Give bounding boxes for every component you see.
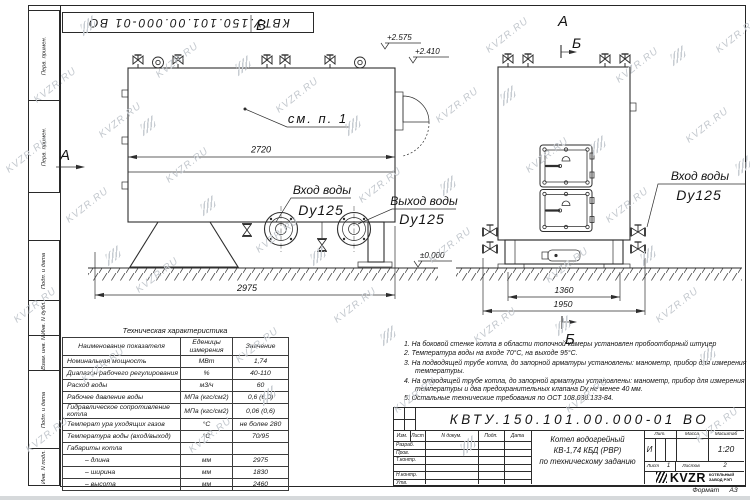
company-logo: KVZR КОТЕЛЬНЫЙ ЗАВОД РЭП xyxy=(646,471,744,484)
inlet-side-text: Вход воды xyxy=(671,169,729,183)
table-cell: % xyxy=(181,368,233,380)
inverted-doc-number-stamp: КВТУ.150.101.00.000-01 ВО xyxy=(62,12,314,33)
boiler-side-view: 2720 2975 см. п. 1 В А xyxy=(56,15,458,299)
table-row: – высотамм2460 xyxy=(63,479,289,491)
side-valve-icon xyxy=(483,225,498,237)
boiler-end-view: 1360 1950 А Б Б xyxy=(456,13,745,348)
table-row: Наименование показателя Еденицы измерени… xyxy=(63,338,289,356)
drawing-title-line1: Котел водогрейный xyxy=(531,434,644,444)
ground-hatch xyxy=(88,269,438,281)
table-row: Номинальная мощностьМВт1,74 xyxy=(63,356,289,368)
see-note-callout: см. п. 1 xyxy=(244,108,351,128)
frame-cell-label: Инв. N дубл. xyxy=(41,301,47,335)
table-cell: 60 xyxy=(233,380,289,392)
sheet-label: Лист xyxy=(644,461,662,471)
outlet-front-dn: Dy125 xyxy=(399,211,444,227)
frame-cell-podp-data-2: Подп. и дата xyxy=(28,370,60,449)
dim-1950-label: 1950 xyxy=(554,299,573,309)
valve-icon xyxy=(173,55,183,68)
col-izm: Изм. xyxy=(394,431,410,441)
frame-cell-inv-dubl: Инв. N дубл. xyxy=(28,300,60,336)
table-cell: МПа (кгс/см2) xyxy=(181,392,233,404)
section-b-top-label: Б xyxy=(572,35,582,51)
title-block: КВТУ.150.101.00.000-01 ВО Изм. Лист N до… xyxy=(393,407,746,486)
frame-cell-label: Инв. N подл. xyxy=(41,450,47,484)
table-row: Температура воды (вход/выход)°С70/95 xyxy=(63,431,289,443)
valve-icon xyxy=(133,55,143,68)
kvzr-stripes-icon xyxy=(656,472,667,483)
table-cell: м3/ч xyxy=(181,380,233,392)
view-a-right-label: А xyxy=(557,13,568,30)
frame-cell-inv-podl: Инв. N подл. xyxy=(28,448,60,486)
col-doc: N докум. xyxy=(425,431,478,441)
inlet-front-text: Вход воды xyxy=(293,183,351,197)
elevation-2410-label: +2.410 xyxy=(415,47,440,56)
role-nkontr: Н.контр. xyxy=(396,472,424,478)
table-cell: Диапазон рабочего регулирования xyxy=(63,368,181,380)
lit-label: Лит. xyxy=(644,431,676,438)
dimension-2720: 2720 xyxy=(128,145,395,160)
table-cell: 1830 xyxy=(233,467,289,479)
kvzr-logo-text: KVZR xyxy=(670,471,706,485)
furnace-door-lower xyxy=(540,190,594,232)
side-valve-icon xyxy=(631,242,646,254)
company-name: КОТЕЛЬНЫЙ ЗАВОД РЭП xyxy=(709,473,734,482)
inverted-doc-number: КВТУ.150.101.00.000-01 ВО xyxy=(87,16,290,30)
explosion-valve xyxy=(395,92,429,156)
technical-notes: 1. На боковой стенке котла в области топ… xyxy=(404,341,747,405)
note-item: 4. На отводящей трубе котла, до запорной… xyxy=(404,378,747,395)
frame-cell-vzam-inv: Взам. инв. N xyxy=(28,335,60,371)
side-valve-icon xyxy=(631,225,646,237)
outlet-front-text: Выход воды xyxy=(390,194,458,208)
table-cell: Расход воды xyxy=(63,380,181,392)
drain-valve-icon xyxy=(242,224,252,237)
frame-cell-label: Перв. примен. xyxy=(41,36,47,75)
table-row: Диапазон рабочего регулирования%40-110 xyxy=(63,368,289,380)
frame-cell-label: Подп. и дата xyxy=(41,252,47,288)
dim-1360-label: 1360 xyxy=(555,285,574,295)
elevation-zero-label: ±0.000 xyxy=(420,251,445,260)
water-inlet-flange xyxy=(265,206,298,252)
doc-number: КВТУ.150.101.00.000-01 ВО xyxy=(415,408,744,430)
side-valve-icon xyxy=(483,242,498,254)
table-cell xyxy=(181,443,233,455)
table-cell: МПа (кгс/см2) xyxy=(181,404,233,419)
table-cell: Температ ура уходящих газов xyxy=(63,419,181,431)
table-cell: МВт xyxy=(181,356,233,368)
table-cell: мм xyxy=(181,479,233,491)
frame-cell-label: Взам. инв. N xyxy=(41,336,47,370)
format-value: А3 xyxy=(729,487,737,494)
sheets-value: 2 xyxy=(706,461,744,471)
spec-table: Наименование показателя Еденицы измерени… xyxy=(62,337,289,491)
company-name-line2: ЗАВОД РЭП xyxy=(709,478,734,482)
frame-cell-label: Подп. и дата xyxy=(41,391,47,427)
table-cell: 1,74 xyxy=(233,356,289,368)
table-cell: мм xyxy=(181,467,233,479)
frame-cell-podp-data-1: Подп. и дата xyxy=(28,240,60,301)
section-b-top-mark: Б xyxy=(561,35,582,58)
base-frame xyxy=(498,240,630,268)
lit-value: И xyxy=(644,440,655,458)
table-cell: 70/95 xyxy=(233,431,289,443)
drawing-title-line3: по техническому заданию xyxy=(531,456,644,466)
role-tkontr: Т.контр. xyxy=(396,457,424,463)
table-cell: Гидравлическое сопротивление котла xyxy=(63,404,181,419)
col-data: Дата xyxy=(504,431,531,441)
frame-cell-perv-primen-1: Перв. примен. xyxy=(28,10,60,101)
frame-cell-label: Перв. примен. xyxy=(41,127,47,166)
role-razrab: Разраб. xyxy=(396,442,424,448)
spec-table-title: Техническая характеристика xyxy=(62,326,288,335)
table-cell: Еденицы измерения xyxy=(181,338,233,356)
table-cell: – ширина xyxy=(63,467,181,479)
see-note-label: см. п. 1 xyxy=(288,111,348,126)
col-list: Лист xyxy=(410,431,425,441)
table-row: – ширинамм1830 xyxy=(63,467,289,479)
col-podp: Подп. xyxy=(478,431,504,441)
note-item: 5. Остальные технические требования по О… xyxy=(404,395,747,403)
drain-valve-icon xyxy=(317,239,327,252)
table-cell: – высота xyxy=(63,479,181,491)
dim-2720-label: 2720 xyxy=(250,145,271,155)
filler-cap-icon xyxy=(355,57,366,68)
inlet-side-label: Вход воды Dy125 xyxy=(647,169,745,227)
role-prov: Пров. xyxy=(396,450,424,456)
mass-label: Масса xyxy=(676,431,708,438)
note-item: 3. На подводящей трубе котла, до запорно… xyxy=(404,360,747,377)
table-cell: мм xyxy=(181,455,233,467)
valve-icon xyxy=(523,54,533,67)
table-row: Рабочее давление водыМПа (кгс/см2)0,6 (6… xyxy=(63,392,289,404)
table-cell: 2975 xyxy=(233,455,289,467)
table-cell: Номинальная мощность xyxy=(63,356,181,368)
table-cell: °С xyxy=(181,419,233,431)
frame-cell-perv-primen-2: Перв. примен. xyxy=(28,100,60,193)
valve-icon xyxy=(503,54,513,67)
table-cell: – длина xyxy=(63,455,181,467)
ground-hatch xyxy=(456,269,742,281)
table-row: Расход водым3/ч60 xyxy=(63,380,289,392)
inlet-front-dn: Dy125 xyxy=(298,202,343,218)
table-row: – длинамм2975 xyxy=(63,455,289,467)
valve-icon xyxy=(620,54,630,67)
scale-label: Масштаб xyxy=(708,431,744,438)
filler-cap-icon xyxy=(153,57,164,68)
table-cell: °С xyxy=(181,431,233,443)
table-cell: 0,6 (6,0) xyxy=(233,392,289,404)
table-cell: Наименование показателя xyxy=(63,338,181,356)
inlet-front-label: Вход воды Dy125 xyxy=(276,183,351,222)
table-cell: 2460 xyxy=(233,479,289,491)
table-cell: Температура воды (вход/выход) xyxy=(63,431,181,443)
table-cell: не более 280 xyxy=(233,419,289,431)
front-support xyxy=(130,222,238,267)
format-note: Формат А3 xyxy=(655,487,750,494)
table-cell: 0,06 (0,6) xyxy=(233,404,289,419)
table-cell: Габариты котла xyxy=(63,443,181,455)
role-utv: Утв. xyxy=(396,480,424,486)
valve-icon xyxy=(280,55,290,68)
note-item: 1. На боковой стенке котла в области топ… xyxy=(404,341,747,349)
table-cell: 40-110 xyxy=(233,368,289,380)
drawing-title-line2: КВ-1,74 КБД (РВР) xyxy=(531,445,644,455)
table-cell: Рабочее давление воды xyxy=(63,392,181,404)
sheets-label: Листов xyxy=(676,461,706,471)
dim-2975-label: 2975 xyxy=(236,283,258,293)
table-cell: Значение xyxy=(233,338,289,356)
scale-value: 1:20 xyxy=(708,440,744,458)
table-cell xyxy=(233,443,289,455)
furnace-door-upper xyxy=(540,145,594,187)
sheet-value: 1 xyxy=(662,461,675,471)
inlet-side-dn: Dy125 xyxy=(676,187,721,203)
view-a-left-label: А xyxy=(59,147,70,164)
valve-icon xyxy=(600,54,610,67)
elevation-2575-label: +2.575 xyxy=(387,33,412,42)
table-row: Гидравлическое сопротивление котлаМПа (к… xyxy=(63,404,289,419)
table-row: Температ ура уходящих газов°Сне более 28… xyxy=(63,419,289,431)
valve-icon xyxy=(325,55,335,68)
table-row: Габариты котла xyxy=(63,443,289,455)
format-label: Формат xyxy=(692,487,719,494)
valve-icon xyxy=(262,55,272,68)
note-item: 2. Температура воды на входе 70°С, на вы… xyxy=(404,350,747,358)
